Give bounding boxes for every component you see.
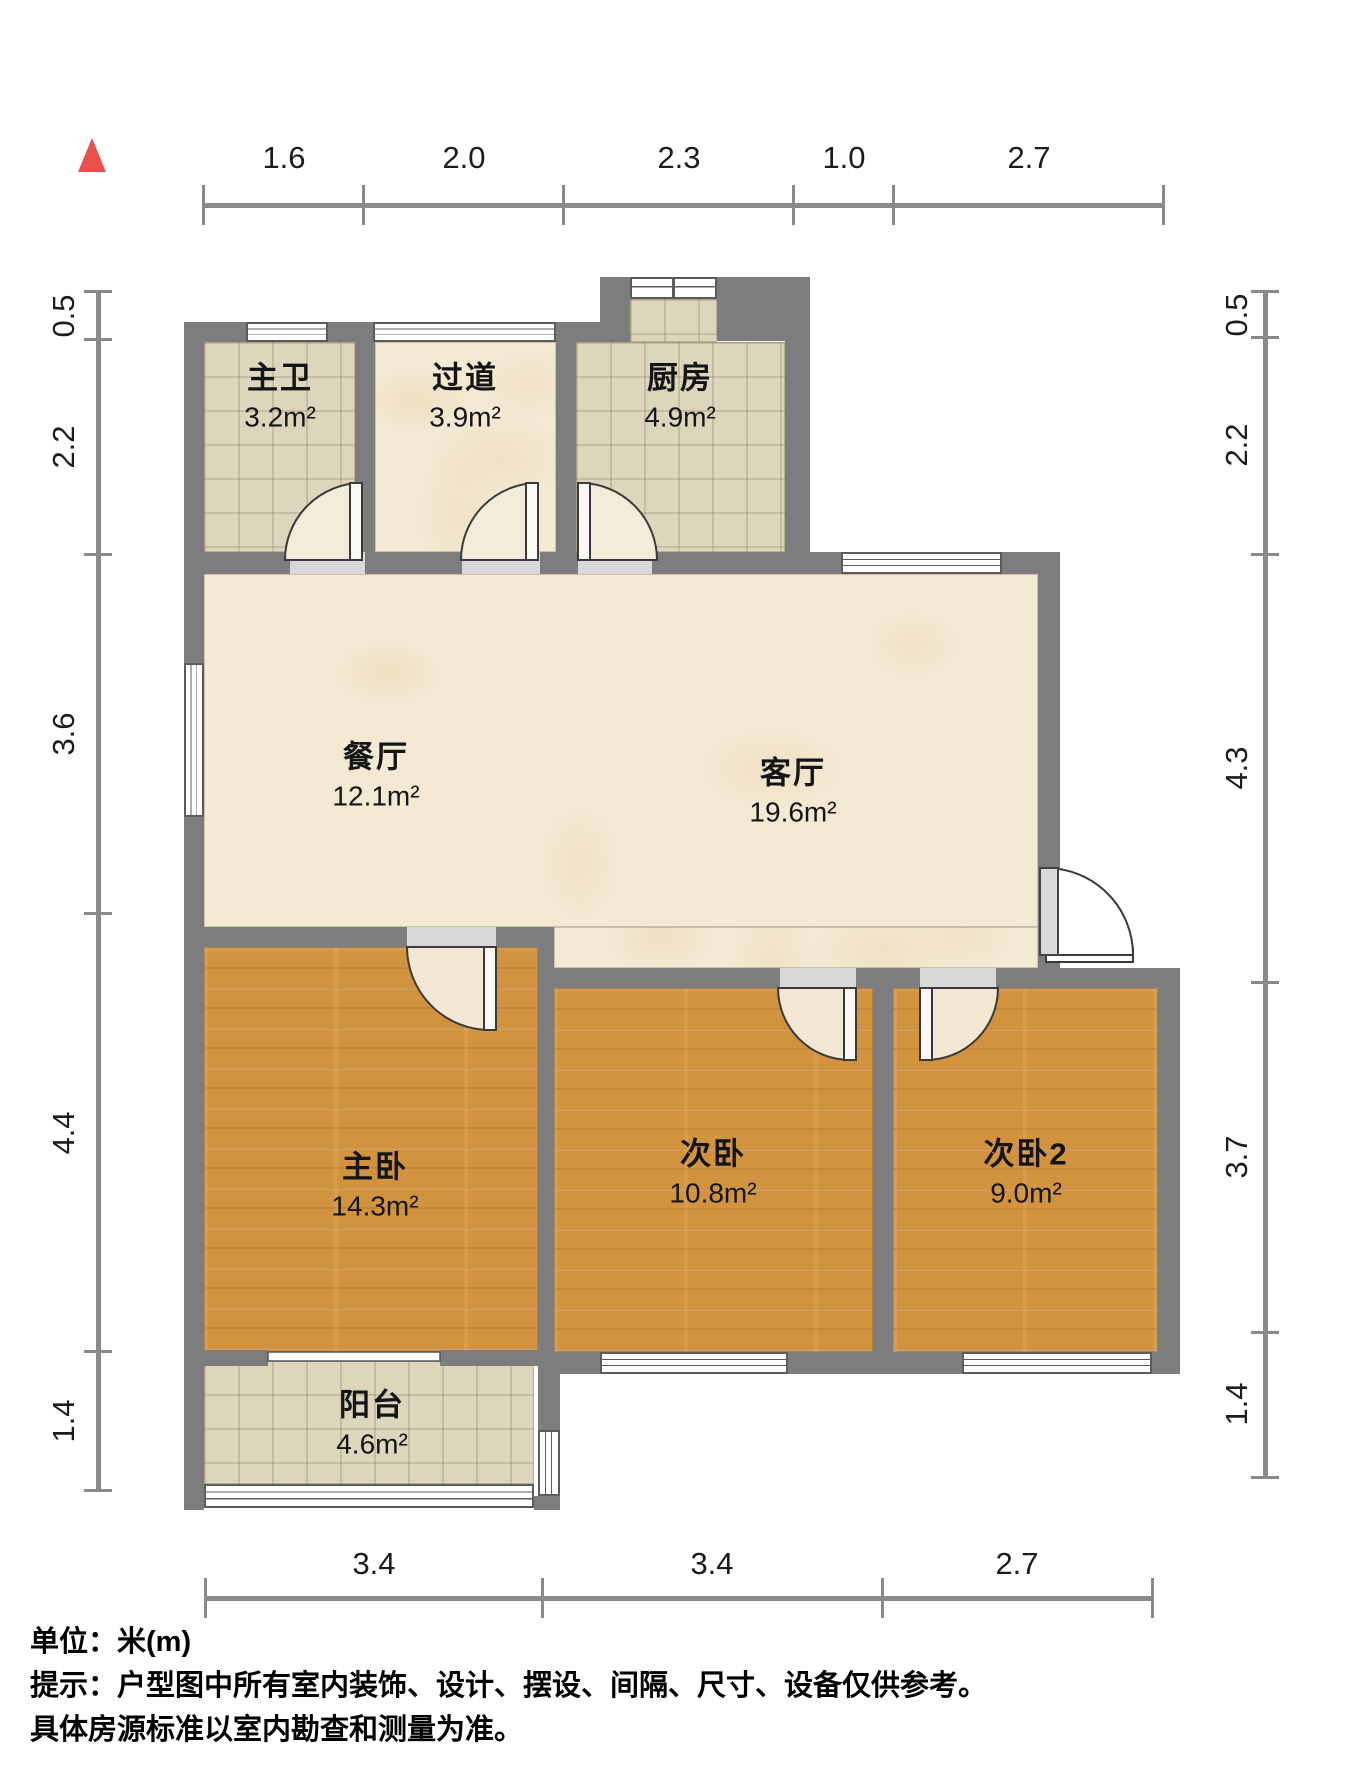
room-label-bedroom3: 次卧2 9.0m² — [983, 1129, 1068, 1210]
dim-left-4: 4.4 — [46, 1111, 82, 1154]
dim-top-2: 2.0 — [442, 140, 485, 176]
dim-tick — [562, 185, 565, 225]
dim-left-1: 0.5 — [46, 294, 82, 337]
bedroom2-door-leaf — [844, 988, 856, 1060]
dim-right-3: 4.3 — [1219, 746, 1255, 789]
dim-tick — [1251, 553, 1279, 556]
dim-tick — [1251, 336, 1279, 339]
entry-door-leaf — [1040, 868, 1058, 955]
room-label-bedroom2: 次卧 10.8m² — [669, 1129, 756, 1210]
room-area: 10.8m² — [669, 1178, 756, 1210]
opening-bedroom3-door — [920, 968, 996, 988]
hallway-door-leaf — [526, 483, 538, 560]
dim-top-5: 2.7 — [1007, 140, 1050, 176]
master-bedroom-door-swing — [407, 947, 490, 1030]
dim-tick — [1251, 1476, 1279, 1479]
dim-tick — [84, 912, 112, 915]
dim-tick — [892, 185, 895, 225]
room-label-dining: 餐厅 12.1m² — [332, 732, 419, 813]
room-name: 过道 — [429, 353, 501, 398]
room-area: 19.6m² — [749, 797, 836, 829]
room-name: 阳台 — [336, 1380, 408, 1425]
dim-right-5: 1.4 — [1219, 1382, 1255, 1425]
balcony-slider-sill — [268, 1352, 440, 1361]
dim-tick — [202, 185, 205, 225]
unit-note: 单位：米(m) — [30, 1620, 987, 1664]
dim-tick — [1251, 981, 1279, 984]
dim-tick — [84, 1489, 112, 1492]
dim-tick — [1251, 1331, 1279, 1334]
dim-bottom-1: 3.4 — [352, 1546, 395, 1582]
room-area: 4.9m² — [644, 402, 716, 434]
dim-top-4: 1.0 — [822, 140, 865, 176]
entry-door-swing — [1046, 868, 1133, 955]
room-name: 厨房 — [644, 353, 716, 398]
master-bedroom-door-leaf — [484, 947, 496, 1030]
room-area: 4.6m² — [336, 1429, 408, 1461]
dim-tick — [1162, 185, 1165, 225]
room-name: 次卧2 — [983, 1129, 1068, 1174]
dim-top-1: 1.6 — [262, 140, 305, 176]
bedroom2-door-swing — [778, 988, 850, 1060]
kitchen-door-leaf — [578, 483, 590, 560]
dim-tick — [792, 185, 795, 225]
dim-right-1: 0.5 — [1219, 293, 1255, 336]
room-name: 次卧 — [669, 1129, 756, 1174]
dim-left-5: 1.4 — [46, 1399, 82, 1442]
opening-bedroom2-door — [780, 968, 856, 988]
room-name: 主卫 — [244, 353, 316, 398]
room-name: 主卧 — [331, 1142, 418, 1187]
dim-tick — [1151, 1578, 1154, 1618]
dim-line-right — [1263, 292, 1268, 1478]
doors-overlay — [0, 0, 1364, 1787]
dim-tick — [881, 1578, 884, 1618]
dim-tick — [84, 290, 112, 293]
opening-master-bed-door — [407, 927, 496, 947]
tip-line-1: 提示：户型图中所有室内装饰、设计、摆设、间隔、尺寸、设备仅供参考。 — [30, 1664, 987, 1708]
dim-line-bottom — [206, 1596, 1153, 1601]
dim-tick — [84, 338, 112, 341]
dim-left-3: 3.6 — [46, 712, 82, 755]
room-area: 9.0m² — [983, 1178, 1068, 1210]
dim-left-2: 2.2 — [46, 425, 82, 468]
dim-tick — [1251, 290, 1279, 293]
bedroom3-door-swing — [926, 988, 998, 1060]
master-bath-door-leaf — [350, 483, 362, 560]
room-name: 餐厅 — [332, 732, 419, 777]
room-label-living: 客厅 19.6m² — [749, 748, 836, 829]
dim-line-top — [204, 203, 1164, 208]
room-area: 3.2m² — [244, 402, 316, 434]
room-label-master-bedroom: 主卧 14.3m² — [331, 1142, 418, 1223]
room-label-master-bath: 主卫 3.2m² — [244, 353, 316, 434]
kitchen-door-swing — [580, 483, 657, 560]
dim-top-3: 2.3 — [657, 140, 700, 176]
dim-tick — [84, 1350, 112, 1353]
dim-right-2: 2.2 — [1219, 423, 1255, 466]
dim-tick — [84, 553, 112, 556]
floor-plan: 主卫 3.2m² 过道 3.9m² 厨房 4.9m² 餐厅 12.1m² 客厅 … — [0, 0, 1364, 1787]
dim-right-4: 3.7 — [1219, 1135, 1255, 1178]
dim-bottom-2: 3.4 — [690, 1546, 733, 1582]
dim-bottom-3: 2.7 — [995, 1546, 1038, 1582]
dim-tick — [362, 185, 365, 225]
dim-line-left — [96, 292, 101, 1491]
room-area: 3.9m² — [429, 402, 501, 434]
dim-tick — [204, 1578, 207, 1618]
tip-line-2: 具体房源标准以室内勘查和测量为准。 — [30, 1708, 987, 1752]
room-name: 客厅 — [749, 748, 836, 793]
bedroom3-door-leaf — [920, 988, 932, 1060]
room-label-hallway: 过道 3.9m² — [429, 353, 501, 434]
footer-notes: 单位：米(m) 提示：户型图中所有室内装饰、设计、摆设、间隔、尺寸、设备仅供参考… — [30, 1620, 987, 1752]
dim-tick — [541, 1578, 544, 1618]
room-label-kitchen: 厨房 4.9m² — [644, 353, 716, 434]
room-area: 14.3m² — [331, 1191, 418, 1223]
room-area: 12.1m² — [332, 781, 419, 813]
room-label-balcony: 阳台 4.6m² — [336, 1380, 408, 1461]
